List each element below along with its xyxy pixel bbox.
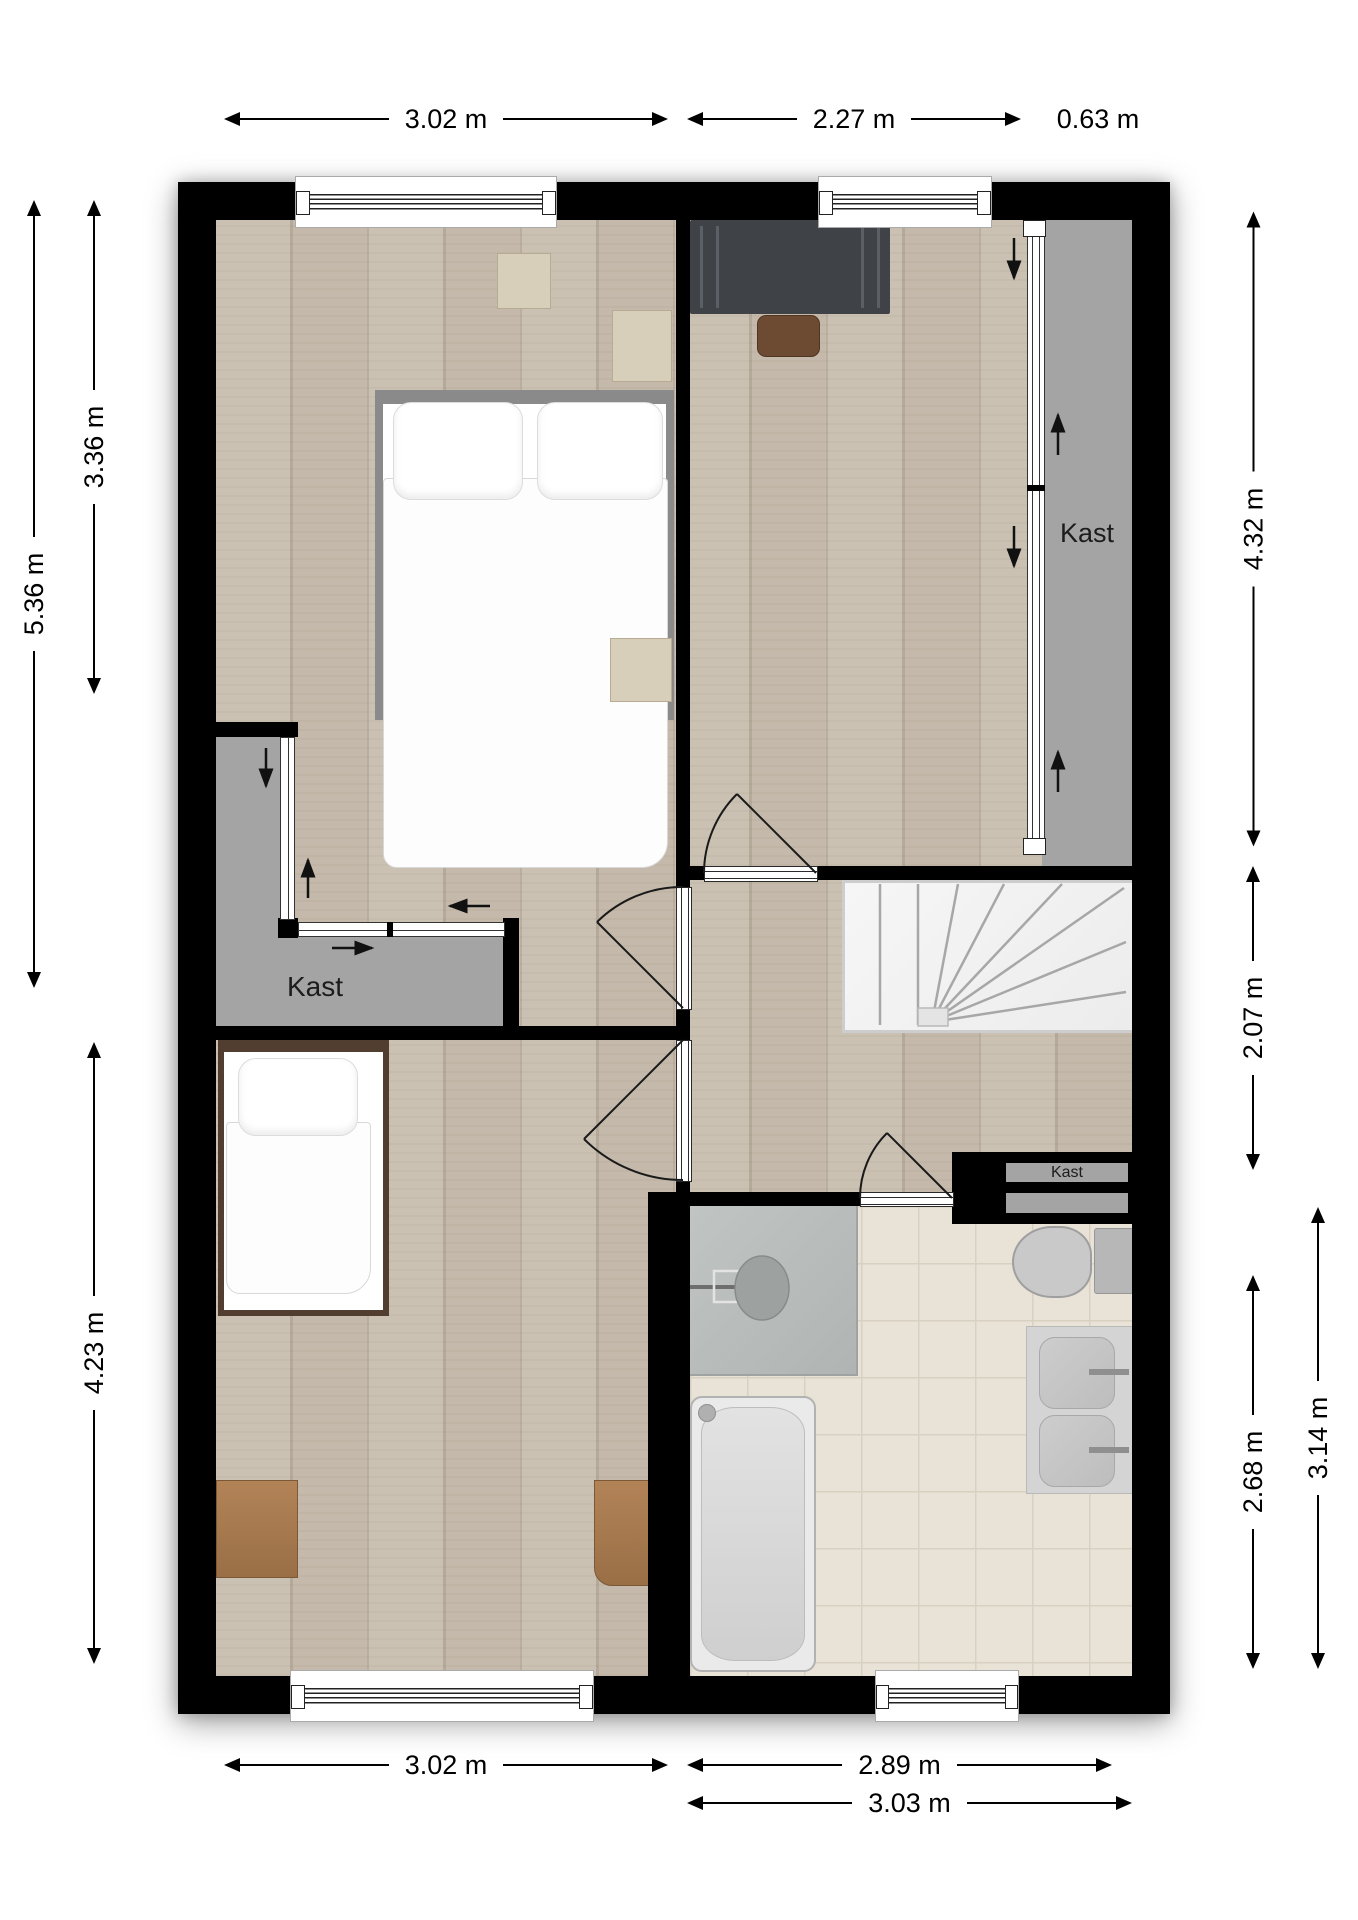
closet-left-corner-post [278, 918, 298, 938]
faucet-top [1089, 1369, 1129, 1375]
closet-left-wall-east [503, 918, 519, 1026]
dim-right-lower-outer-label: 3.14 m [1303, 1381, 1333, 1496]
bathtub [690, 1396, 816, 1672]
dim-top-right-label: 0.63 m [1041, 104, 1156, 134]
door-bedroom1 [676, 887, 692, 1010]
window-bedroom3 [290, 1670, 594, 1722]
closet-left-wall-top [216, 722, 298, 737]
dim-left-full: 5.36 m [19, 200, 49, 988]
dim-left-lower: 4.23 m [79, 1042, 109, 1664]
dim-left-full-label: 5.36 m [19, 537, 49, 652]
wall-bathroom-west [648, 1192, 690, 1676]
desk [690, 220, 890, 314]
nightstand-top [497, 253, 551, 309]
pillow-left [393, 402, 523, 500]
door-bathroom [860, 1192, 954, 1207]
dim-left-upper-label: 3.36 m [79, 390, 109, 505]
dim-right-upper-label: 4.32 m [1239, 472, 1269, 587]
dim-top-right: 0.63 m [1038, 104, 1158, 134]
single-bed-duvet [226, 1122, 371, 1294]
closet-small-slot-bottom [1006, 1193, 1128, 1213]
door-bedroom2 [704, 866, 818, 882]
dim-bottom-left: 3.02 m [224, 1750, 668, 1780]
pillow-right [537, 402, 663, 500]
window-bedroom1 [295, 176, 557, 228]
closet-left-label: Kast [287, 971, 343, 1002]
dim-top-middle: 2.27 m [687, 104, 1021, 134]
wall-left [178, 182, 216, 1714]
dim-top-left-label: 3.02 m [389, 104, 504, 134]
wall-bedrooms-horizontal [216, 1026, 690, 1040]
toilet-tank [1094, 1228, 1134, 1294]
closet-left-sliding-door-vertical [280, 737, 295, 920]
wall-bedroom-divider-upper [676, 220, 690, 887]
bathtub-inner [701, 1407, 805, 1661]
bedroom-bench [610, 638, 672, 702]
toilet-bowl [1012, 1226, 1092, 1298]
wall-hall-south-right [816, 866, 1132, 880]
shower-area [690, 1206, 858, 1376]
wall-hall-south-left [690, 866, 704, 880]
wall-right [1132, 182, 1170, 1714]
closet-right-door-jamb-top [1023, 220, 1046, 237]
closet-right-door-jamb-bottom [1023, 838, 1046, 855]
window-bathroom [875, 1670, 1019, 1722]
dim-top-left: 3.02 m [224, 104, 668, 134]
window-bedroom2 [818, 176, 992, 228]
dim-top-middle-label: 2.27 m [797, 104, 912, 134]
bathtub-faucet [698, 1404, 716, 1422]
single-bed-pillow [238, 1058, 358, 1136]
dim-bottom-left-label: 3.02 m [389, 1750, 504, 1780]
dim-right-middle-label: 2.07 m [1238, 961, 1268, 1076]
nightstand-side [612, 310, 672, 382]
closet-left-sliding-door-horizontal [298, 922, 505, 937]
dim-bottom-right: 3.03 m [687, 1788, 1132, 1818]
dim-bottom-middle-label: 2.89 m [842, 1750, 957, 1780]
door-bedroom3 [676, 1040, 692, 1182]
sink-counter [1026, 1326, 1134, 1494]
dim-right-middle: 2.07 m [1238, 866, 1268, 1170]
wall-bathroom-north [690, 1192, 860, 1206]
dim-right-lower-outer: 3.14 m [1303, 1207, 1333, 1669]
faucet-bottom [1089, 1447, 1129, 1453]
closet-right-label: Kast [1060, 518, 1114, 548]
floor-plan-page: { "plan": { "closet_left_label": "Kast",… [0, 0, 1358, 1920]
dim-right-lower-inner: 2.68 m [1238, 1275, 1268, 1669]
closet-left-label-box: Kast [235, 970, 395, 1004]
closet-small-slot-top: Kast [1006, 1163, 1128, 1182]
desk-chair [757, 315, 820, 357]
dim-bottom-middle: 2.89 m [687, 1750, 1112, 1780]
desk-left [216, 1480, 298, 1578]
staircase [842, 880, 1135, 1033]
dim-right-upper: 4.32 m [1239, 212, 1269, 847]
dim-right-lower-inner-label: 2.68 m [1238, 1415, 1268, 1530]
dim-left-lower-label: 4.23 m [79, 1296, 109, 1411]
dim-left-upper: 3.36 m [79, 200, 109, 694]
desk-right [594, 1480, 650, 1586]
closet-right-label-box: Kast [1042, 516, 1132, 550]
dim-bottom-right-label: 3.03 m [852, 1788, 967, 1818]
closet-small-label: Kast [1051, 1164, 1083, 1181]
